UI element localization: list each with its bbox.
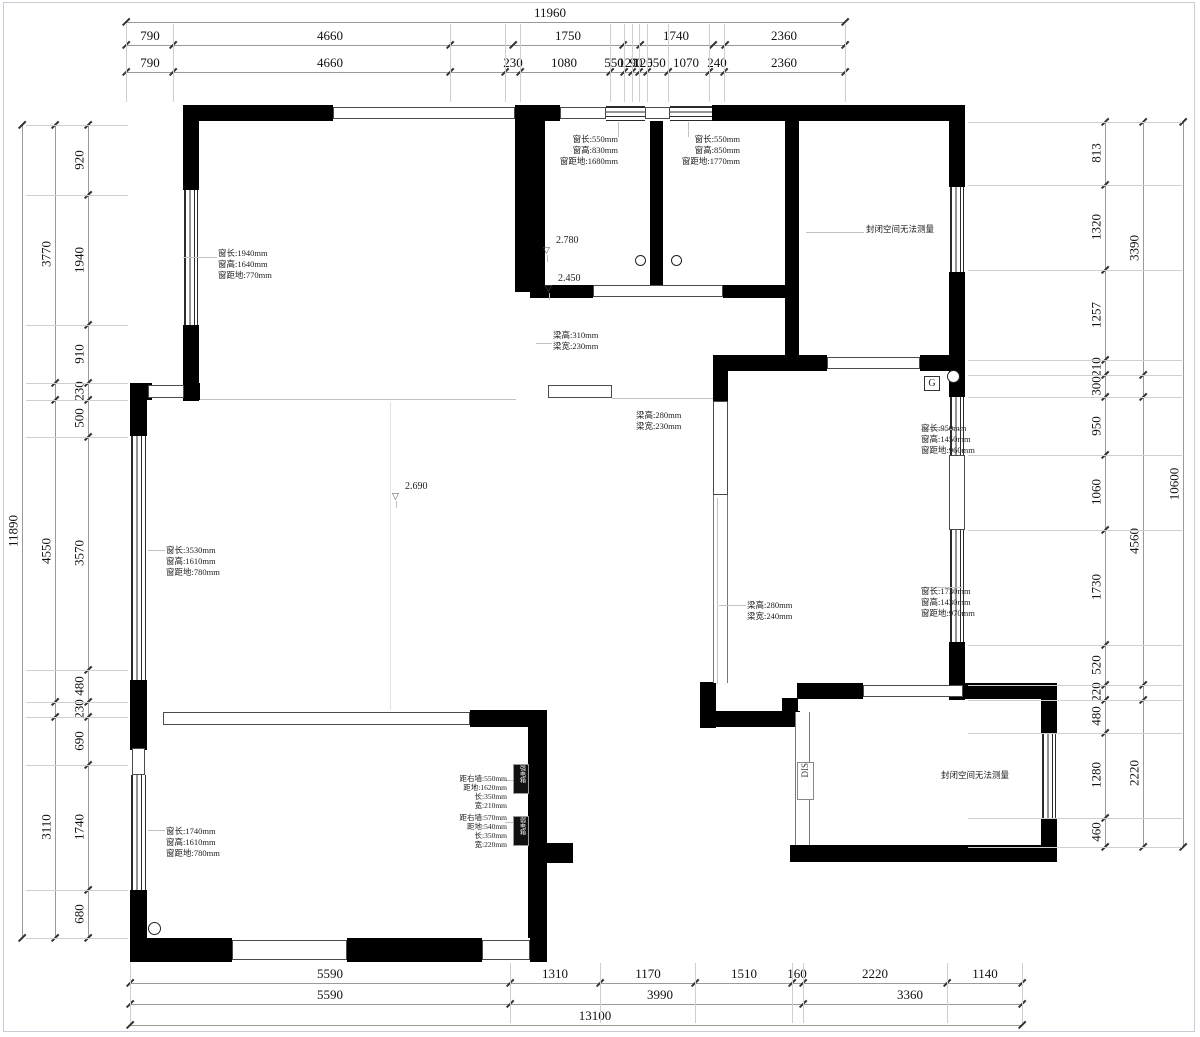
extension-line — [600, 963, 601, 1023]
weak-electric-box-label: 弱电箱 — [515, 817, 528, 835]
dimension-line — [1105, 122, 1106, 847]
dimension-line — [22, 125, 23, 938]
circle-marker — [671, 255, 682, 266]
extension-line — [26, 400, 128, 401]
extension-line — [845, 24, 846, 102]
elevation-line — [549, 293, 550, 300]
wall-segment — [184, 383, 200, 400]
extension-line — [26, 383, 128, 384]
door-window-opening — [827, 357, 920, 369]
extension-line — [968, 375, 1182, 376]
wall-segment — [712, 105, 965, 121]
dim-label: 790 — [140, 29, 160, 42]
strong-electric-box: 强电箱 — [513, 764, 529, 794]
door-window-opening — [232, 940, 347, 960]
circle-marker — [947, 370, 960, 383]
extension-line — [968, 122, 1182, 123]
dim-label: 2360 — [771, 29, 797, 42]
annotation-ebox-upper: 距右墙:550mm距地:1620mm长:350mm宽:210mm — [459, 774, 507, 810]
dim-label: 1740 — [73, 814, 86, 840]
extension-line — [26, 890, 128, 891]
dim-label: 11890 — [7, 515, 20, 547]
leader-line — [148, 830, 165, 831]
window-hatch — [606, 106, 645, 121]
dim-label: 1510 — [731, 967, 757, 980]
extension-line — [632, 24, 633, 102]
dim-label: 2220 — [1128, 760, 1141, 786]
dim-label: 13100 — [579, 1009, 612, 1022]
window-hatch — [670, 106, 712, 121]
dim-label: 813 — [1090, 143, 1103, 163]
leader-line — [719, 605, 746, 606]
dim-label: 1750 — [555, 29, 581, 42]
extension-line — [947, 963, 948, 1023]
dim-label: 460 — [1090, 822, 1103, 842]
circle-marker — [635, 255, 646, 266]
dim-label: 920 — [73, 150, 86, 170]
annotation-closed-space-bottom: 封闭空间无法测量 — [941, 770, 1009, 781]
dim-label: 500 — [73, 408, 86, 428]
dim-label: 1060 — [1090, 479, 1103, 505]
door-window-opening — [148, 385, 184, 398]
wall-segment — [713, 371, 728, 401]
extension-line — [520, 24, 521, 102]
dim-label: 480 — [1090, 706, 1103, 726]
door-window-opening — [482, 940, 530, 960]
dim-label: 950 — [1090, 416, 1103, 436]
annotation-closed-space-top: 封闭空间无法测量 — [866, 224, 934, 235]
wall-segment — [785, 121, 799, 355]
extension-line — [130, 963, 131, 1023]
window-hatch — [1042, 734, 1056, 818]
extension-line — [968, 530, 1182, 531]
dim-label: 790 — [140, 56, 160, 69]
dim-label: 1070 — [673, 56, 699, 69]
dimension-line — [1183, 122, 1184, 847]
leader-line — [618, 122, 619, 137]
extension-line — [126, 24, 127, 102]
wall-segment — [130, 938, 232, 962]
dim-label: 230 — [73, 381, 86, 401]
extension-line — [668, 24, 669, 102]
extension-line — [26, 670, 128, 671]
extension-line — [968, 847, 1182, 848]
dim-label: 550 — [646, 56, 666, 69]
weak-electric-box: 弱电箱 — [513, 816, 529, 846]
dimension-line — [55, 125, 56, 938]
strong-electric-box-label: 强电箱 — [515, 765, 528, 783]
elevation-triangle-icon: ▽ — [545, 284, 552, 293]
annotation-window-top-left: 窗长:1940mm窗高:1640mm窗距地:770mm — [218, 248, 272, 281]
dim-label: 1310 — [542, 967, 568, 980]
wall-segment — [949, 105, 965, 187]
beam-line — [717, 498, 718, 684]
dim-label: 480 — [73, 676, 86, 696]
annotation-window-bath-left: 窗长:550mm窗高:830mm窗距地:1680mm — [560, 134, 618, 167]
extension-line — [968, 360, 1182, 361]
wall-segment — [1041, 683, 1057, 734]
extension-line — [639, 24, 640, 102]
extension-line — [968, 455, 1182, 456]
dim-label: 4550 — [40, 538, 53, 564]
wall-segment — [547, 843, 573, 863]
door-window-opening — [593, 285, 723, 297]
door-window-opening — [713, 401, 728, 495]
window-hatch — [950, 187, 964, 272]
extension-line — [709, 24, 710, 102]
leader-line — [148, 550, 165, 551]
extension-line — [968, 685, 1182, 686]
elevation-line — [396, 501, 397, 508]
annotation-beam-b: 梁高:280mm梁宽:230mm — [636, 410, 681, 432]
extension-line — [792, 963, 793, 1023]
extension-line — [26, 325, 128, 326]
dimension-line — [130, 1004, 1022, 1005]
elevation-triangle-icon: ▽ — [543, 246, 550, 255]
extension-line — [510, 963, 511, 1023]
dimension-line — [126, 72, 845, 73]
extension-line — [968, 270, 1182, 271]
dim-label: 680 — [73, 904, 86, 924]
dim-label: 10600 — [1168, 468, 1181, 501]
dim-label: 1170 — [635, 967, 661, 980]
dim-label: 5590 — [317, 988, 343, 1001]
dim-label: 1140 — [972, 967, 998, 980]
extension-line — [450, 24, 451, 102]
dim-label: 11960 — [534, 6, 566, 19]
dimension-line — [126, 45, 845, 46]
dim-label: 1280 — [1090, 762, 1103, 788]
wall-segment — [130, 400, 147, 436]
g-marker: G — [924, 376, 940, 391]
dim-label: 4660 — [317, 29, 343, 42]
wall-segment — [528, 727, 547, 938]
extension-line — [610, 24, 611, 102]
extension-line — [26, 125, 128, 126]
annotation-window-bath-right: 窗长:550mm窗高:850mm窗距地:1770mm — [682, 134, 740, 167]
extension-line — [968, 397, 1182, 398]
extension-line — [26, 717, 128, 718]
wall-segment — [515, 105, 545, 292]
extension-line — [26, 195, 128, 196]
door-window-opening — [863, 685, 963, 697]
window-hatch — [131, 436, 146, 680]
dis-label: DIS — [798, 763, 813, 778]
extension-line — [26, 437, 128, 438]
leader-line — [536, 343, 552, 344]
annotation-window-left-lower: 窗长:1740mm窗高:1610mm窗距地:780mm — [166, 826, 220, 859]
extension-line — [26, 938, 128, 939]
dim-label: 1320 — [1090, 214, 1103, 240]
annotation-ebox-lower: 距右墙:570mm距地:540mm长:350mm宽:220mm — [459, 813, 507, 849]
door-window-opening — [548, 385, 612, 398]
dim-label: 3360 — [897, 988, 923, 1001]
dimension-line — [130, 983, 1022, 984]
wall-segment — [130, 680, 147, 750]
construction-line — [390, 402, 391, 710]
dim-label: 5590 — [317, 967, 343, 980]
extension-line — [26, 765, 128, 766]
dim-label: 910 — [73, 344, 86, 364]
dim-label: 4660 — [317, 56, 343, 69]
extension-line — [968, 645, 1182, 646]
dim-label: 2220 — [862, 967, 888, 980]
wall-segment — [545, 105, 560, 121]
dim-label: 520 — [1090, 655, 1103, 675]
elevation-label: 2.450 — [558, 273, 581, 284]
wall-segment — [470, 710, 547, 727]
wall-segment — [723, 285, 799, 298]
extension-line — [968, 700, 1182, 701]
wall-segment — [782, 698, 798, 712]
window-hatch — [131, 775, 146, 890]
door-window-opening — [645, 107, 670, 119]
dimension-line — [1143, 122, 1144, 847]
extension-line — [26, 702, 128, 703]
wall-segment — [650, 121, 663, 288]
dimension-line — [130, 1025, 1022, 1026]
annotation-beam-a: 梁高:310mm梁宽:230mm — [553, 330, 598, 352]
extension-line — [968, 733, 1182, 734]
extension-line — [1022, 963, 1023, 1023]
extension-line — [647, 24, 648, 102]
door-window-opening — [560, 107, 606, 119]
wall-segment — [183, 105, 199, 190]
dim-label: 2360 — [771, 56, 797, 69]
elevation-label: 2.780 — [556, 235, 579, 246]
dim-label: 1940 — [73, 247, 86, 273]
annotation-window-right-lower: 窗长:1730mm窗高:1430mm窗距地:970mm — [921, 586, 975, 619]
door-window-opening — [949, 455, 965, 530]
dimension-line — [88, 125, 89, 938]
wall-segment — [530, 285, 593, 298]
floor-plan-canvas: G DIS 强电箱 弱电箱 11960790466017501740236079… — [0, 0, 1200, 1037]
dim-label: 3390 — [1128, 235, 1141, 261]
wall-segment — [713, 355, 827, 371]
elevation-label: 2.690 — [405, 481, 428, 492]
dim-label: 4560 — [1128, 528, 1141, 554]
wall-segment — [700, 711, 800, 727]
beam-line — [612, 398, 713, 399]
door-window-opening — [333, 107, 515, 119]
extension-line — [173, 24, 174, 102]
dim-label: 690 — [73, 731, 86, 751]
annotation-window-left-main: 窗长:3530mm窗高:1610mm窗距地:780mm — [166, 545, 220, 578]
unmeasured-wall — [713, 495, 728, 683]
door-window-opening — [132, 748, 145, 775]
door-window-opening — [163, 712, 470, 725]
leader-line — [183, 257, 217, 258]
dim-label: 1257 — [1090, 302, 1103, 328]
leader-line — [806, 232, 864, 233]
circle-marker — [148, 922, 161, 935]
dimension-line — [126, 22, 845, 23]
extension-line — [505, 24, 506, 102]
extension-line — [968, 818, 1182, 819]
extension-line — [803, 963, 804, 1023]
extension-line — [968, 185, 1182, 186]
room-boundary-line — [200, 399, 516, 400]
wall-segment — [347, 938, 482, 962]
annotation-beam-c: 梁高:280mm梁宽:240mm — [747, 600, 792, 622]
dim-label: 3110 — [40, 814, 53, 840]
elevation-triangle-icon: ▽ — [392, 492, 399, 501]
extension-line — [624, 24, 625, 102]
dis-marker: DIS — [797, 762, 814, 800]
dim-label: 3770 — [40, 241, 53, 267]
extension-line — [724, 24, 725, 102]
elevation-line — [547, 255, 548, 262]
dim-label: 1730 — [1090, 574, 1103, 600]
extension-line — [695, 963, 696, 1023]
wall-segment — [797, 683, 863, 699]
dim-label: 1740 — [663, 29, 689, 42]
wall-segment — [183, 105, 333, 121]
dim-label: 300 — [1090, 376, 1103, 396]
wall-segment — [530, 938, 547, 962]
wall-segment — [920, 355, 965, 371]
annotation-window-right-upper: 窗长:950mm窗高:1450mm窗距地:960mm — [921, 423, 975, 456]
dim-label: 3570 — [73, 540, 86, 566]
dim-label: 3990 — [647, 988, 673, 1001]
dim-label: 1080 — [551, 56, 577, 69]
